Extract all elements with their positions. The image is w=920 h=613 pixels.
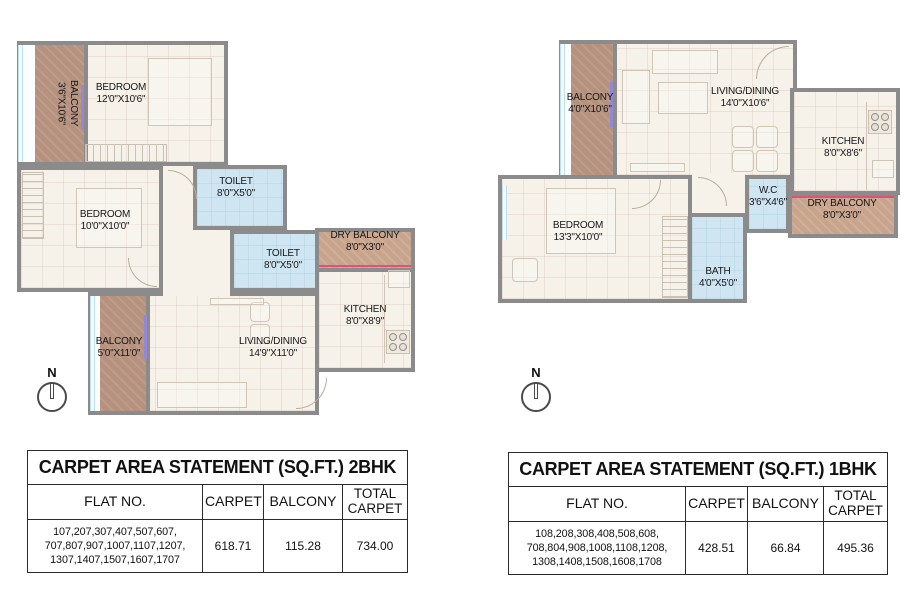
room-dims: 10'0"X10'0" — [60, 221, 150, 233]
room-label-bedroom-mid: BEDROOM 10'0"X10'0" — [60, 209, 150, 233]
balcony-value: 115.28 — [264, 519, 343, 572]
room-label-toilet-top: TOILET 8'0"X5'0" — [196, 176, 276, 200]
room-dims: 8'0"X3'0" — [807, 210, 877, 222]
room-name: BATH — [683, 266, 753, 278]
room-name: DRY BALCONY — [330, 230, 400, 242]
flat-numbers-line: 1307,1407,1507,1607,1707 — [30, 553, 200, 567]
room-dims: 8'0"X5'0" — [196, 188, 276, 200]
room-name: BEDROOM — [60, 209, 150, 221]
compass-circle — [37, 382, 67, 412]
wardrobe-hatch — [22, 172, 44, 239]
col-header-flat-no: FLAT NO. — [28, 485, 203, 520]
room-name: DRY BALCONY — [807, 198, 877, 210]
table-title: CARPET AREA STATEMENT (SQ.FT.) 2BHK — [28, 451, 408, 485]
window-strip — [502, 185, 507, 240]
flat-numbers-line: 108,208,308,408,508,608, — [511, 527, 683, 541]
flat-numbers-cell: 108,208,308,408,508,608, 708,804,908,100… — [509, 521, 686, 574]
window-strip — [18, 45, 23, 162]
room-dims: 14'0"X10'6" — [690, 98, 800, 110]
wardrobe-hatch — [85, 144, 167, 162]
dry-balcony-edge-line — [319, 265, 411, 267]
carpet-area-table-2bhk: CARPET AREA STATEMENT (SQ.FT.) 2BHK FLAT… — [27, 450, 408, 573]
room-name: TOILET — [196, 176, 276, 188]
room-label-living: LIVING/DINING 14'0"X10'6" — [690, 86, 800, 110]
room-name: KITCHEN — [803, 136, 883, 148]
furniture-outline — [157, 382, 247, 408]
flat-numbers-line: 708,804,908,1008,1108,1208, — [511, 541, 683, 555]
compass-north-indicator: N — [521, 365, 551, 412]
floorplan-2bhk: BALCONY 3'6"X10'6" BEDROOM 12'0"X10'6" B… — [10, 30, 420, 430]
compass-needle — [50, 383, 54, 399]
room-name: LIVING/DINING — [218, 336, 328, 348]
room-label-balcony-top: BALCONY 3'6"X10'6" — [39, 55, 79, 152]
room-name: KITCHEN — [325, 304, 405, 316]
room-name: BEDROOM — [533, 220, 623, 232]
room-dims: 4'0"X10'6" — [558, 104, 622, 116]
furniture-outline — [250, 302, 270, 322]
room-dims: 12'0"X10'6" — [76, 94, 166, 106]
room-dims: 8'0"X3'0" — [330, 242, 400, 254]
room-label-balcony: BALCONY 4'0"X10'6" — [558, 92, 622, 116]
flat-numbers-line: 1308,1408,1508,1608,1708 — [511, 555, 683, 569]
room-dims: 8'0"X8'6" — [803, 148, 883, 160]
room-dims: 14'9"X11'0" — [218, 348, 328, 360]
room-dims: 3'6"X4'6" — [738, 197, 798, 209]
stove-burners-icon — [868, 110, 892, 134]
furniture-outline — [732, 150, 754, 172]
room-name: LIVING/DINING — [690, 86, 800, 98]
col-header-balcony: BALCONY — [264, 485, 343, 520]
col-header-total-carpet: TOTAL CARPET — [824, 487, 888, 522]
room-label-bedroom-top: BEDROOM 12'0"X10'6" — [76, 82, 166, 106]
room-dims: 8'0"X5'0" — [243, 260, 323, 272]
room-label-dry-balcony: DRY BALCONY 8'0"X3'0" — [807, 198, 877, 222]
room-dims: 13'3"X10'0" — [533, 232, 623, 244]
room-label-living: LIVING/DINING 14'9"X11'0" — [218, 336, 328, 360]
compass-n-label: N — [521, 365, 551, 380]
floorplan-1bhk: BALCONY 4'0"X10'6" LIVING/DINING 14'0"X1… — [460, 30, 910, 430]
furniture-outline — [652, 50, 718, 74]
total-carpet-value: 495.36 — [824, 521, 888, 574]
room-dims: 8'0"X8'9" — [325, 316, 405, 328]
floor-plan-sheet: BALCONY 3'6"X10'6" BEDROOM 12'0"X10'6" B… — [0, 0, 920, 613]
door-arc — [296, 378, 327, 409]
table-title: CARPET AREA STATEMENT (SQ.FT.) 1BHK — [509, 453, 888, 487]
room-dims: 4'0"X5'0" — [683, 278, 753, 290]
col-header-flat-no: FLAT NO. — [509, 487, 686, 522]
col-header-balcony: BALCONY — [748, 487, 824, 522]
carpet-area-table-1bhk: CARPET AREA STATEMENT (SQ.FT.) 1BHK FLAT… — [508, 452, 888, 575]
table-row: 108,208,308,408,508,608, 708,804,908,100… — [509, 521, 888, 574]
stove-burners-icon — [386, 330, 410, 354]
room-label-toilet-bottom: TOILET 8'0"X5'0" — [243, 248, 323, 272]
compass-circle — [521, 382, 551, 412]
room-name: BALCONY — [87, 336, 151, 348]
balcony-value: 66.84 — [748, 521, 824, 574]
flat-numbers-line: 107,207,307,407,507,607, — [30, 525, 200, 539]
col-header-carpet: CARPET — [686, 487, 748, 522]
room-label-kitchen: KITCHEN 8'0"X8'9" — [325, 304, 405, 328]
furniture-outline — [756, 150, 778, 172]
col-header-total-carpet: TOTAL CARPET — [343, 485, 408, 520]
furniture-outline — [732, 126, 754, 148]
kitchen-sink-icon — [872, 160, 894, 178]
furniture-outline — [210, 298, 264, 305]
room-name: W.C — [738, 185, 798, 197]
room-label-dry-balcony: DRY BALCONY 8'0"X3'0" — [330, 230, 400, 254]
total-carpet-value: 734.00 — [343, 519, 408, 572]
room-label-kitchen: KITCHEN 8'0"X8'6" — [803, 136, 883, 160]
room-label-bedroom: BEDROOM 13'3"X10'0" — [533, 220, 623, 244]
flat-numbers-cell: 107,207,307,407,507,607, 707,807,907,100… — [28, 519, 203, 572]
compass-needle — [534, 383, 538, 399]
col-header-carpet: CARPET — [203, 485, 264, 520]
furniture-outline — [622, 70, 650, 124]
room-dims: 5'0"X11'0" — [87, 348, 151, 360]
room-name: BEDROOM — [76, 82, 166, 94]
kitchen-sink-icon — [388, 270, 410, 288]
room-dims: 3'6"X10'6" — [54, 55, 67, 152]
table-row: 107,207,307,407,507,607, 707,807,907,100… — [28, 519, 408, 572]
carpet-value: 618.71 — [203, 519, 264, 572]
room-label-bath: BATH 4'0"X5'0" — [683, 266, 753, 290]
furniture-outline — [756, 126, 778, 148]
room-name: BALCONY — [558, 92, 622, 104]
room-name: TOILET — [243, 248, 323, 260]
furniture-outline — [512, 258, 538, 282]
room-label-wc: W.C 3'6"X4'6" — [738, 185, 798, 209]
compass-north-indicator: N — [37, 365, 67, 412]
compass-n-label: N — [37, 365, 67, 380]
carpet-value: 428.51 — [686, 521, 748, 574]
flat-numbers-line: 707,807,907,1007,1107,1207, — [30, 539, 200, 553]
room-label-balcony-bottom: BALCONY 5'0"X11'0" — [87, 336, 151, 360]
furniture-outline — [630, 163, 685, 172]
